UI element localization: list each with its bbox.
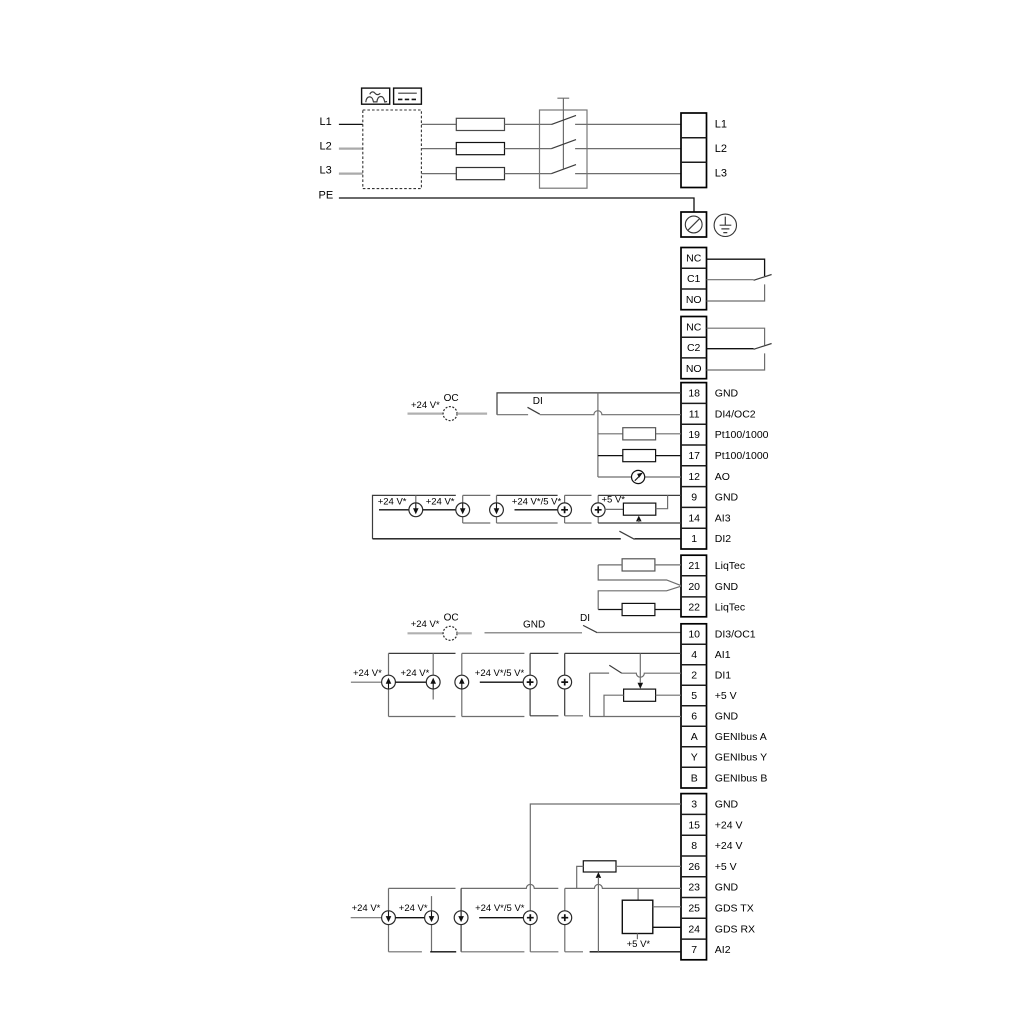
svg-text:LiqTec: LiqTec <box>715 602 745 614</box>
svg-text:C2: C2 <box>687 342 701 354</box>
svg-text:+24 V: +24 V <box>715 840 743 852</box>
svg-text:DI4/OC2: DI4/OC2 <box>715 408 756 420</box>
svg-text:C1: C1 <box>687 273 701 285</box>
svg-text:GND: GND <box>715 581 739 593</box>
svg-text:GENIbus A: GENIbus A <box>715 731 767 743</box>
svg-text:17: 17 <box>688 450 700 462</box>
svg-text:2: 2 <box>691 670 697 682</box>
svg-text:LiqTec: LiqTec <box>715 560 745 572</box>
svg-text:Pt100/1000: Pt100/1000 <box>715 450 769 462</box>
svg-text:+24 V*: +24 V* <box>399 903 428 914</box>
svg-text:L2: L2 <box>320 140 332 152</box>
svg-text:+24 V*: +24 V* <box>352 903 381 914</box>
svg-text:GENIbus Y: GENIbus Y <box>715 752 767 764</box>
svg-text:GND: GND <box>715 711 739 723</box>
svg-text:3: 3 <box>691 799 697 811</box>
svg-text:+24 V*: +24 V* <box>411 400 440 411</box>
svg-text:OC: OC <box>444 393 459 404</box>
svg-text:15: 15 <box>688 819 700 831</box>
svg-text:GND: GND <box>715 799 739 811</box>
svg-text:7: 7 <box>691 944 697 956</box>
svg-text:+24 V*: +24 V* <box>401 668 430 679</box>
svg-text:14: 14 <box>688 512 700 524</box>
svg-text:4: 4 <box>691 649 697 661</box>
svg-text:L1: L1 <box>715 119 727 131</box>
svg-text:+24 V*: +24 V* <box>353 668 382 679</box>
svg-text:+5 V: +5 V <box>715 861 737 873</box>
svg-text:+24 V*: +24 V* <box>426 497 455 508</box>
svg-text:+5 V*: +5 V* <box>627 939 651 950</box>
svg-text:8: 8 <box>691 840 697 852</box>
svg-text:+24 V*: +24 V* <box>378 497 407 508</box>
svg-text:+24 V: +24 V <box>715 819 743 831</box>
svg-text:+24 V*/5 V*: +24 V*/5 V* <box>512 497 562 508</box>
svg-text:GND: GND <box>715 492 739 504</box>
svg-text:AI1: AI1 <box>715 649 731 661</box>
svg-text:PE: PE <box>319 190 334 202</box>
svg-text:+24 V*/5 V*: +24 V*/5 V* <box>475 903 525 914</box>
svg-text:OC: OC <box>444 613 459 624</box>
svg-text:11: 11 <box>689 408 700 420</box>
svg-text:A: A <box>691 731 698 743</box>
svg-text:L2: L2 <box>715 143 727 155</box>
svg-text:25: 25 <box>688 903 700 915</box>
svg-text:18: 18 <box>688 388 700 400</box>
svg-text:+5 V: +5 V <box>715 690 737 702</box>
svg-text:9: 9 <box>691 492 697 504</box>
svg-text:AI2: AI2 <box>715 944 731 956</box>
svg-text:Y: Y <box>691 752 698 764</box>
svg-text:AO: AO <box>715 471 730 483</box>
svg-text:DI: DI <box>580 613 590 624</box>
svg-text:24: 24 <box>688 923 700 935</box>
svg-text:GDS RX: GDS RX <box>715 923 755 935</box>
svg-text:12: 12 <box>688 471 700 483</box>
svg-text:L3: L3 <box>715 168 727 180</box>
svg-text:GENIbus B: GENIbus B <box>715 772 768 784</box>
svg-text:NC: NC <box>686 322 702 334</box>
svg-text:6: 6 <box>691 711 697 723</box>
svg-text:20: 20 <box>688 581 700 593</box>
svg-text:+24 V*: +24 V* <box>411 619 440 630</box>
svg-text:NO: NO <box>686 294 702 306</box>
svg-text:Pt100/1000: Pt100/1000 <box>715 429 769 441</box>
svg-text:L1: L1 <box>320 116 332 128</box>
svg-text:+24 V*/5 V*: +24 V*/5 V* <box>475 668 525 679</box>
svg-text:26: 26 <box>688 861 700 873</box>
svg-text:19: 19 <box>688 429 700 441</box>
svg-text:AI3: AI3 <box>715 512 731 524</box>
svg-text:L3: L3 <box>320 165 332 177</box>
svg-text:10: 10 <box>688 629 700 641</box>
svg-text:23: 23 <box>688 882 700 894</box>
svg-text:B: B <box>691 772 698 784</box>
svg-text:DI: DI <box>533 396 543 407</box>
svg-text:GND: GND <box>715 882 739 894</box>
svg-text:DI3/OC1: DI3/OC1 <box>715 629 756 641</box>
svg-text:NO: NO <box>686 363 702 375</box>
svg-text:22: 22 <box>688 602 700 614</box>
svg-text:+5 V*: +5 V* <box>602 495 626 506</box>
svg-text:DI1: DI1 <box>715 670 732 682</box>
svg-text:GND: GND <box>523 620 545 631</box>
svg-text:GND: GND <box>715 388 739 400</box>
svg-text:1: 1 <box>691 533 697 545</box>
svg-text:21: 21 <box>688 560 700 572</box>
svg-text:DI2: DI2 <box>715 533 732 545</box>
svg-text:NC: NC <box>686 253 702 265</box>
svg-text:GDS TX: GDS TX <box>715 903 754 915</box>
svg-text:5: 5 <box>691 690 697 702</box>
